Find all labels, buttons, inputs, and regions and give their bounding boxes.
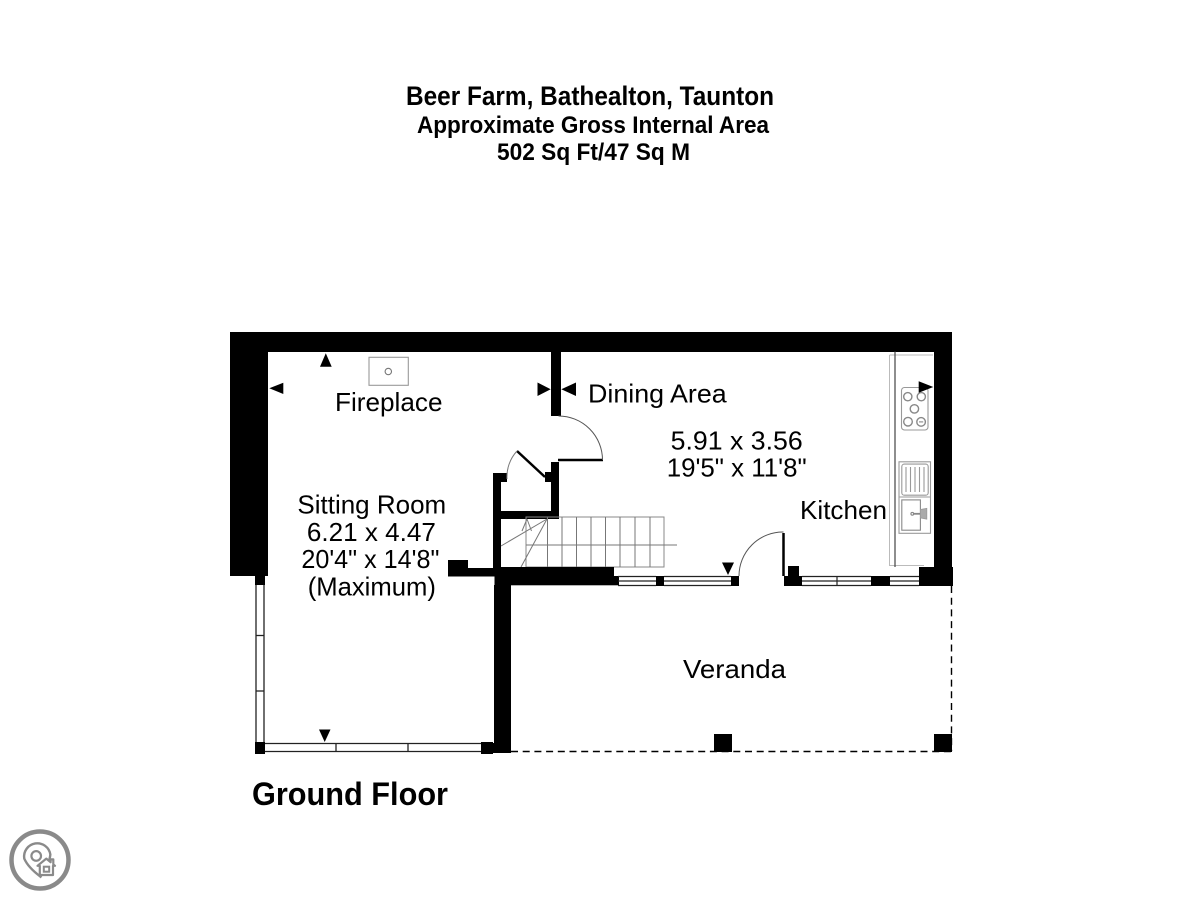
svg-text:502 Sq Ft/47 Sq M: 502 Sq Ft/47 Sq M [497, 139, 690, 166]
svg-text:19'5" x 11'8": 19'5" x 11'8" [667, 453, 807, 483]
svg-text:Beer Farm, Bathealton, Taunton: Beer Farm, Bathealton, Taunton [406, 81, 774, 111]
svg-text:Sitting Room: Sitting Room [297, 490, 446, 520]
svg-text:Approximate Gross Internal Are: Approximate Gross Internal Area [417, 112, 769, 139]
svg-text:20'4" x 14'8": 20'4" x 14'8" [301, 544, 439, 574]
svg-text:Veranda: Veranda [683, 654, 787, 684]
svg-text:(Maximum): (Maximum) [308, 572, 436, 602]
svg-text:Ground Floor: Ground Floor [252, 776, 448, 812]
svg-text:Fireplace: Fireplace [335, 387, 443, 417]
svg-text:Dining Area: Dining Area [588, 379, 727, 409]
svg-text:5.91 x 3.56: 5.91 x 3.56 [671, 426, 803, 456]
svg-text:Kitchen: Kitchen [800, 495, 887, 525]
svg-text:6.21 x 4.47: 6.21 x 4.47 [307, 517, 436, 547]
